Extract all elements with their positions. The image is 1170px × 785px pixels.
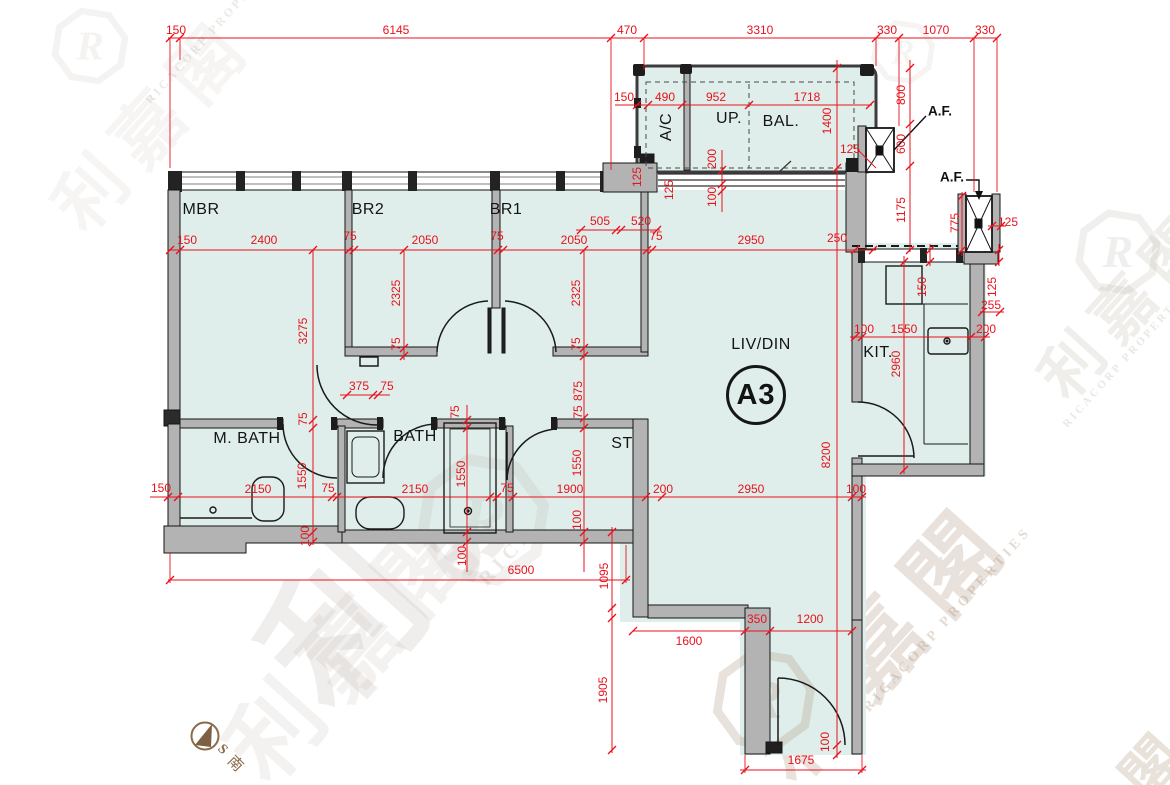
wall-south-bath: [342, 530, 633, 543]
wall-kit-west: [852, 252, 862, 402]
svg-text:R: R: [890, 33, 914, 71]
unit-number-badge: A3: [726, 365, 786, 425]
wall-mbr-br2: [345, 190, 352, 350]
af-flue-1: [858, 126, 894, 172]
svg-text:R: R: [1102, 226, 1134, 277]
af-flue-2: [958, 194, 1000, 252]
wall-mbath-bath: [338, 426, 345, 532]
floorplan-canvas: 利嘉閣RICACORP PROPERTIESRICACORP PROPERTIE…: [0, 0, 1170, 785]
wall-south-step: [648, 605, 748, 618]
wall-west: [168, 190, 180, 422]
wall-liv-east: [852, 458, 862, 620]
svg-text:R: R: [458, 481, 507, 560]
wall-kit-south: [852, 464, 984, 476]
ricacorp-octagon-logo: R: [1079, 213, 1157, 291]
svg-text:R: R: [75, 23, 104, 69]
wall-st-east: [633, 419, 648, 617]
ricacorp-octagon-logo: R: [55, 11, 125, 81]
ricacorp-octagon-logo: R: [874, 23, 932, 81]
wall-entry-west: [745, 608, 770, 754]
wall-ac: [684, 70, 690, 170]
floorplan-drawing: RRRRR: [0, 0, 1170, 785]
af-leaders: [894, 116, 983, 200]
wall-br1-liv: [641, 190, 648, 352]
window-band-kitchen: [862, 249, 970, 262]
wall-kit-east: [970, 258, 984, 473]
pier-balcony-east: [846, 163, 866, 252]
wall-br2-south: [345, 347, 437, 356]
wall-br1-south: [553, 347, 648, 356]
compass: [192, 723, 219, 750]
wall-entry-east: [852, 618, 862, 754]
